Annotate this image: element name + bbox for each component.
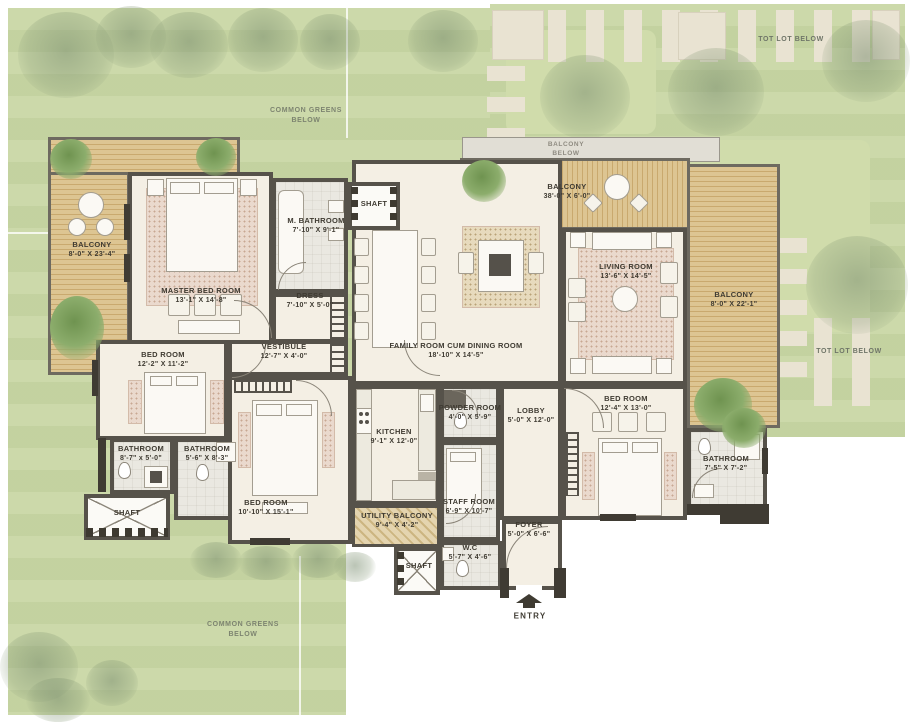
shrub-corner — [26, 678, 90, 722]
window — [124, 204, 130, 240]
side-table — [656, 232, 672, 248]
patio-chair — [68, 218, 86, 236]
room-label-bed-room-left: BED ROOM 12'-2" X 11'-2" — [138, 350, 189, 370]
room-label-bathroom-a: BATHROOM 8'-7" x 5'-0" — [118, 444, 164, 464]
shrub-corner — [86, 660, 138, 706]
patio-table — [78, 192, 104, 218]
chair — [458, 252, 474, 274]
armchair — [660, 296, 678, 318]
toilet — [196, 464, 209, 481]
armchair — [568, 278, 586, 298]
rug — [210, 380, 224, 424]
basin — [150, 471, 162, 483]
sink — [420, 394, 434, 412]
pillow — [170, 182, 200, 194]
entry-label: ENTRY — [514, 612, 547, 621]
pillow — [204, 182, 234, 194]
wardrobe — [234, 380, 292, 393]
dresser — [178, 320, 240, 334]
tot-lot-paver — [492, 10, 544, 60]
balcony-tree — [50, 139, 92, 179]
shrub-row — [238, 546, 294, 580]
toilet — [698, 438, 711, 455]
tree — [228, 8, 298, 72]
sofa — [592, 232, 652, 250]
kitchen-counter — [392, 480, 436, 500]
sofa — [592, 356, 652, 374]
room-label-bed-room-right: BED ROOM 12'-4" X 13'-0" — [600, 394, 651, 414]
armchair — [660, 262, 678, 284]
pillow — [602, 442, 628, 453]
room-label-shaft-left: SHAFT — [114, 508, 141, 518]
room-label-shaft-bottom: SHAFT — [406, 561, 433, 571]
room-label-shaft-top: SHAFT — [361, 199, 388, 209]
dining-chair — [421, 238, 436, 256]
common-greens-label-top: COMMON GREENS BELOW — [270, 106, 342, 126]
floor-plan: BALCONY 8'-0" X 23'-4" MASTER BED ROOM 1… — [0, 0, 915, 723]
tot-lot-paving-col — [487, 66, 525, 138]
wardrobe — [566, 432, 579, 496]
pillow — [450, 452, 476, 462]
dining-chair — [421, 266, 436, 284]
tree — [806, 236, 908, 334]
balcony-below-label: BALCONY BELOW — [548, 140, 584, 158]
dining-chair — [354, 238, 369, 256]
pillow — [150, 376, 172, 386]
tree — [408, 10, 478, 72]
dining-chair — [354, 294, 369, 312]
nightstand — [240, 179, 257, 196]
room-label-dress: DRESS 7'-10" X 5'-0" — [287, 291, 334, 311]
side-table — [656, 358, 672, 374]
shrub-row — [190, 542, 242, 578]
room-label-lobby: LOBBY 5'-0" X 12'-0" — [508, 406, 555, 426]
pillow — [176, 376, 198, 386]
armchair — [568, 302, 586, 322]
room-label-foyer: FOYER 5'-0" X 6'-6" — [508, 520, 551, 540]
entry-arrow-stem — [523, 603, 535, 608]
tree — [150, 12, 228, 78]
room-label-staff-room: STAFF ROOM 6'-9" X 10'-7" — [443, 497, 495, 517]
dining-table — [372, 230, 418, 348]
pillow — [632, 442, 658, 453]
room-label-powder-room: POWDER ROOM 4'-0" X 5'-9" — [439, 403, 501, 423]
shaft-hatch — [397, 552, 404, 590]
burner — [365, 420, 369, 424]
room-label-bathroom-b: BATHROOM 5'-6" X 8'-3" — [184, 444, 230, 464]
shaft-hatch — [390, 187, 397, 225]
room-label-bed-room-bottom-left: BED ROOM 10'-10" X 15'-1" — [238, 498, 293, 518]
table-centerpiece — [489, 254, 511, 276]
entry-arrow — [516, 594, 542, 603]
tree — [822, 20, 910, 102]
room-label-living-room: LIVING ROOM 13'-6" X 14'-5" — [599, 262, 653, 282]
rug — [238, 412, 251, 468]
rug — [664, 452, 677, 500]
window — [250, 538, 290, 545]
entry-pillar — [500, 568, 509, 598]
rug — [322, 412, 335, 468]
patio-chair — [96, 218, 114, 236]
window — [762, 448, 768, 474]
window — [600, 514, 636, 521]
side-table — [570, 358, 586, 374]
lawn-gridline — [299, 556, 301, 715]
dining-chair — [421, 294, 436, 312]
tot-lot-label-right: TOT LOT BELOW — [816, 347, 882, 357]
dining-chair — [354, 322, 369, 340]
room-label-family-room: FAMILY ROOM CUM DINING ROOM 18'-10" X 14… — [389, 341, 522, 361]
chair — [646, 412, 666, 432]
dining-chair — [421, 322, 436, 340]
chair — [618, 412, 638, 432]
balcony-tree — [196, 138, 236, 176]
rug — [128, 380, 142, 424]
chair — [528, 252, 544, 274]
balcony-tree — [722, 408, 766, 448]
shaft-hatch — [86, 528, 168, 537]
room-label-balcony-left: BALCONY 8'-0" X 23'-4" — [69, 240, 116, 260]
room-label-balcony-top: BALCONY 38'-0" X 6'-0" — [544, 182, 591, 202]
nightstand — [147, 179, 164, 196]
dining-chair — [354, 266, 369, 284]
toilet — [118, 462, 131, 479]
room-label-wc: W.C 5'-7" X 4'-6" — [449, 543, 492, 563]
wall-segment — [98, 438, 106, 492]
tree — [540, 55, 630, 139]
tot-lot-label-top: TOT LOT BELOW — [758, 35, 824, 45]
rug — [582, 452, 595, 500]
tree — [668, 48, 764, 136]
room-label-utility-balcony: UTILITY BALCONY 9'-4" X 4'-2" — [361, 511, 433, 531]
common-greens-label-bottom: COMMON GREENS BELOW — [207, 620, 279, 640]
patio-table — [604, 174, 630, 200]
entry-door-gap — [516, 585, 542, 593]
shrub-row — [334, 552, 376, 582]
burner — [359, 412, 363, 416]
coffee-table — [612, 286, 638, 312]
wall-segment — [720, 514, 769, 524]
entry-pillar — [554, 568, 566, 598]
room-label-kitchen: KITCHEN 9'-1" X 12'-0" — [371, 427, 418, 447]
wash-basin — [328, 200, 344, 213]
burner — [365, 412, 369, 416]
shaft-hatch — [351, 187, 358, 225]
pillow — [256, 404, 282, 416]
room-label-master-bed-room: MASTER BED ROOM 13'-1" X 14'-8" — [161, 286, 241, 306]
side-table — [570, 232, 586, 248]
burner — [359, 420, 363, 424]
balcony-tree — [462, 160, 506, 202]
window — [124, 254, 130, 282]
balcony-tree — [50, 296, 104, 360]
room-label-balcony-right: BALCONY 8'-0" X 22'-1" — [711, 290, 758, 310]
window — [92, 360, 98, 396]
room-label-bathroom-right: BATHROOM 7'-5" X 7'-2" — [703, 454, 749, 474]
room-label-m-bathroom: M. BATHROOM 7'-10" X 9'-1" — [287, 216, 344, 236]
room-label-vestibule: VESTIBULE 12'-7" X 4'-0" — [261, 342, 308, 362]
tree — [300, 14, 360, 70]
